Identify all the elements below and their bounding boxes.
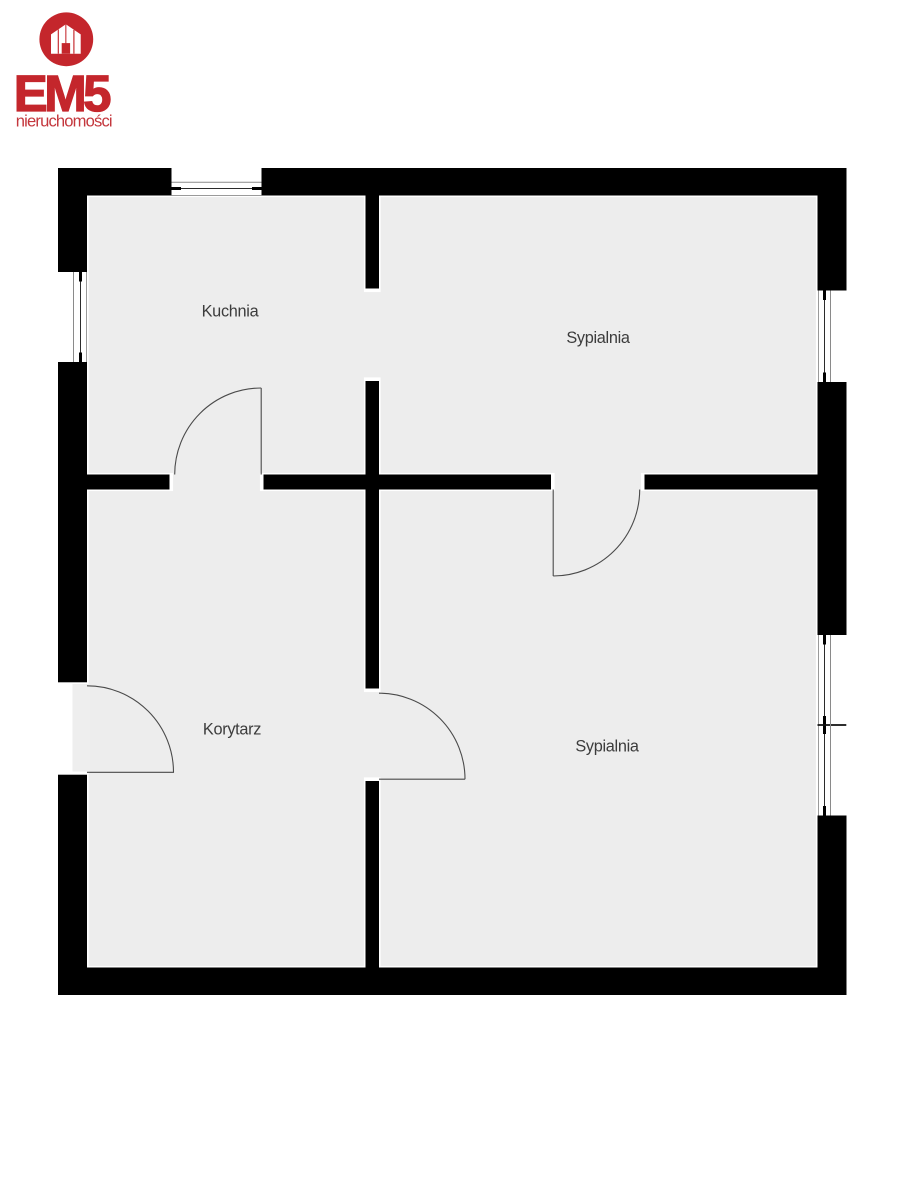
svg-text:Kuchnia: Kuchnia (202, 303, 260, 321)
svg-text:nieruchomości: nieruchomości (16, 112, 112, 131)
svg-text:Korytarz: Korytarz (203, 721, 261, 739)
svg-text:Sypialnia: Sypialnia (575, 738, 640, 756)
svg-text:Sypialnia: Sypialnia (566, 329, 631, 347)
